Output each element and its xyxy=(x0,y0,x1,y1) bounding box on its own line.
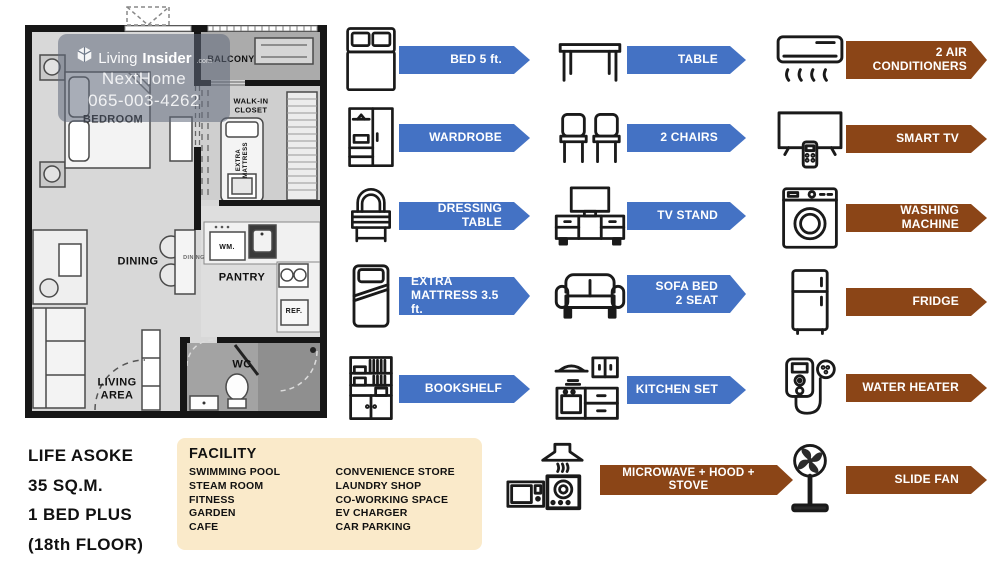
appliance-label-smart-tv: SMART TV xyxy=(846,125,987,153)
appliance-label-air-conditioners: 2 AIR CONDITIONERS xyxy=(846,41,987,79)
room-label-fridge: REF. xyxy=(286,308,303,316)
legend-row-table: TABLE xyxy=(552,20,746,100)
facility-item: CONVENIENCE STORE xyxy=(336,466,483,480)
facility-item: GARDEN xyxy=(189,507,336,521)
extra-mattress-icon xyxy=(350,262,392,330)
facility-title: FACILITY xyxy=(189,446,482,462)
water-heater-icon xyxy=(781,355,839,421)
sofa-bed-icon xyxy=(554,267,626,321)
furniture-label-kitchen-set: KITCHEN SET xyxy=(627,376,746,404)
room-label-wc: WC xyxy=(232,359,251,372)
facility-item: LAUNDRY SHOP xyxy=(336,480,483,494)
room-label-living-area: LIVING AREA xyxy=(97,376,136,401)
chairs-icon xyxy=(557,110,623,166)
facility-item: EV CHARGER xyxy=(336,507,483,521)
brand-suffix: .com xyxy=(197,58,212,65)
facility-item: CAFE xyxy=(189,521,336,535)
furniture-label-extra-mattress: EXTRA MATTRESS 3.5 ft. xyxy=(399,277,530,315)
kitchen-set-icon xyxy=(553,356,627,424)
listing-infographic: BALCONY BEDROOM WALK-IN CLOSET EXTRA MAT… xyxy=(0,0,1000,562)
room-label-dining: DINING xyxy=(118,256,159,269)
condenser-symbol xyxy=(127,7,169,25)
furniture-label-table: TABLE xyxy=(627,46,746,74)
legend-row-water-heater: WATER HEATER xyxy=(774,348,987,428)
legend-row-extra-mattress: EXTRA MATTRESS 3.5 ft. xyxy=(342,256,530,336)
furniture-label-tv-stand: TV STAND xyxy=(627,202,746,230)
dressing-table-icon xyxy=(347,185,395,247)
table-icon xyxy=(556,35,624,85)
room-label-washer: WM. xyxy=(219,244,235,252)
unit-info: LIFE ASOKE 35 SQ.M. 1 BED PLUS (18th FLO… xyxy=(28,441,143,559)
facility-column-2: CONVENIENCE STORE LAUNDRY SHOP CO-WORKIN… xyxy=(336,466,483,535)
furniture-label-dressing-table: DRESSING TABLE xyxy=(399,202,530,230)
appliance-label-washing-machine: WASHING MACHINE xyxy=(846,204,987,232)
legend-row-microwave-hood-stove: MICROWAVE + HOOD + STOVE xyxy=(505,440,793,520)
air-conditioner-icon xyxy=(776,31,844,89)
unit-floor: (18th FLOOR) xyxy=(28,530,143,560)
legend-row-tv-stand: TV STAND xyxy=(552,176,746,256)
floor-plan: BALCONY BEDROOM WALK-IN CLOSET EXTRA MAT… xyxy=(0,0,340,430)
room-label-pantry: PANTRY xyxy=(219,272,265,285)
facility-item: STEAM ROOM xyxy=(189,480,336,494)
appliance-label-fridge: FRIDGE xyxy=(846,288,987,316)
room-label-walk-in-closet: WALK-IN CLOSET xyxy=(234,97,269,114)
legend-row-slide-fan: SLIDE FAN xyxy=(774,440,987,520)
legend-row-bed: BED 5 ft. xyxy=(342,20,530,100)
brand-living: Living xyxy=(98,50,137,67)
smart-tv-icon xyxy=(777,109,843,169)
legend-row-dressing-table: DRESSING TABLE xyxy=(342,176,530,256)
furniture-label-bookshelf: BOOKSHELF xyxy=(399,375,530,403)
legend-row-wardrobe: WARDROBE xyxy=(342,98,530,178)
facility-box: FACILITY SWIMMING POOL STEAM ROOM FITNES… xyxy=(177,438,482,550)
brand-insider: Insider xyxy=(142,50,191,67)
washing-machine-icon xyxy=(779,185,841,251)
living-insider-logo-icon xyxy=(76,46,93,63)
bed-icon xyxy=(344,24,398,96)
legend-row-air-conditioner: 2 AIR CONDITIONERS xyxy=(774,20,987,100)
appliance-label-water-heater: WATER HEATER xyxy=(846,374,987,402)
furniture-label-chairs: 2 CHAIRS xyxy=(627,124,746,152)
facility-item: CAR PARKING xyxy=(336,521,483,535)
legend-row-sofa-bed: SOFA BED 2 SEAT xyxy=(552,254,746,334)
legend-row-chairs: 2 CHAIRS xyxy=(552,98,746,178)
slide-fan-icon xyxy=(785,443,835,517)
facility-item: FITNESS xyxy=(189,494,336,508)
project-name: LIFE ASOKE xyxy=(28,441,143,471)
unit-area: 35 SQ.M. xyxy=(28,471,143,501)
room-label-dining-table: DINING xyxy=(183,255,205,261)
watermark: Living Insider .com NextHome 065-003-426… xyxy=(58,34,230,122)
legend-row-smart-tv: SMART TV xyxy=(774,99,987,179)
furniture-label-bed: BED 5 ft. xyxy=(399,46,530,74)
bookshelf-icon xyxy=(346,354,396,424)
agent-name: NextHome xyxy=(102,69,186,89)
legend-row-bookshelf: BOOKSHELF xyxy=(342,349,530,429)
facility-column-1: SWIMMING POOL STEAM ROOM FITNESS GARDEN … xyxy=(189,466,336,535)
furniture-label-wardrobe: WARDROBE xyxy=(399,124,530,152)
facility-item: CO-WORKING SPACE xyxy=(336,494,483,508)
tv-stand-icon xyxy=(554,186,626,246)
legend-row-kitchen-set: KITCHEN SET xyxy=(552,350,746,430)
wardrobe-icon xyxy=(346,104,396,172)
unit-layout: 1 BED PLUS xyxy=(28,500,143,530)
furniture-label-sofa-bed: SOFA BED 2 SEAT xyxy=(627,275,746,313)
room-label-extra-mattress: EXTRA MATTRESS xyxy=(236,142,250,178)
legend-row-fridge: FRIDGE xyxy=(774,262,987,342)
microwave-hood-stove-icon xyxy=(506,442,600,518)
furniture-label-microwave-hood-stove: MICROWAVE + HOOD + STOVE xyxy=(600,465,793,495)
legend-row-washing-machine: WASHING MACHINE xyxy=(774,178,987,258)
agent-phone: 065-003-4262 xyxy=(88,91,200,111)
facility-item: SWIMMING POOL xyxy=(189,466,336,480)
appliance-label-slide-fan: SLIDE FAN xyxy=(846,466,987,494)
fridge-icon xyxy=(789,268,831,336)
